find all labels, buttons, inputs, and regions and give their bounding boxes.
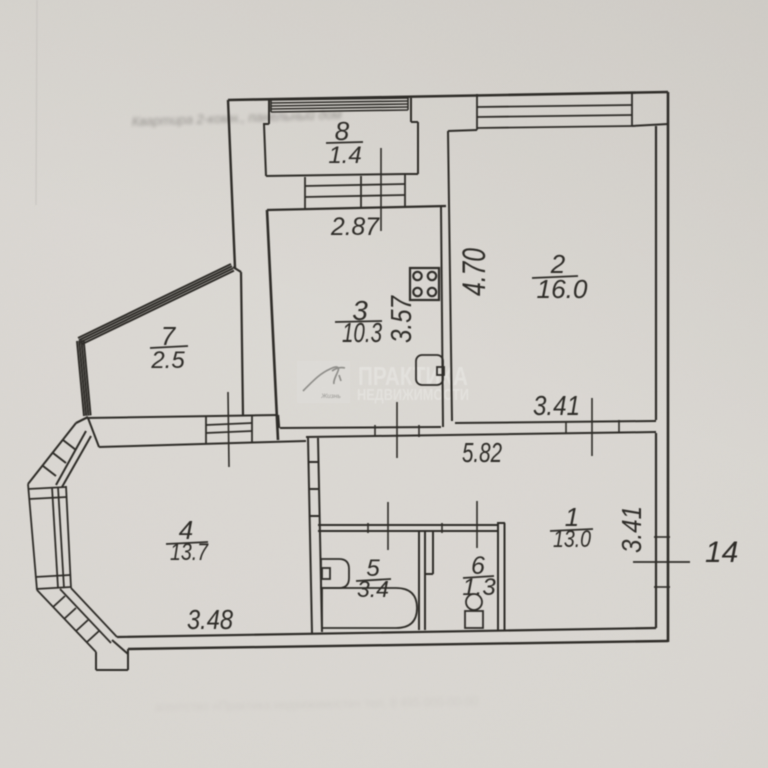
- svg-text:16.0: 16.0: [537, 274, 589, 304]
- svg-text:агентство «Практика недвижимос: агентство «Практика недвижимости» тел. 8…: [155, 694, 479, 714]
- svg-text:Жизнь: Жизнь: [320, 393, 341, 400]
- svg-text:1.4: 1.4: [328, 142, 361, 169]
- svg-text:5.82: 5.82: [462, 437, 502, 468]
- svg-text:2.5: 2.5: [150, 347, 185, 374]
- svg-text:3.57: 3.57: [386, 294, 418, 343]
- svg-text:2.87: 2.87: [330, 213, 380, 241]
- svg-text:3.48: 3.48: [187, 604, 233, 635]
- svg-text:Квартира 2-комн., панельный до: Квартира 2-комн., панельный дом: [132, 107, 342, 129]
- svg-text:3.41: 3.41: [616, 506, 647, 553]
- svg-text:3.41: 3.41: [533, 390, 580, 421]
- svg-text:14: 14: [705, 536, 738, 569]
- svg-text:4.70: 4.70: [456, 248, 492, 296]
